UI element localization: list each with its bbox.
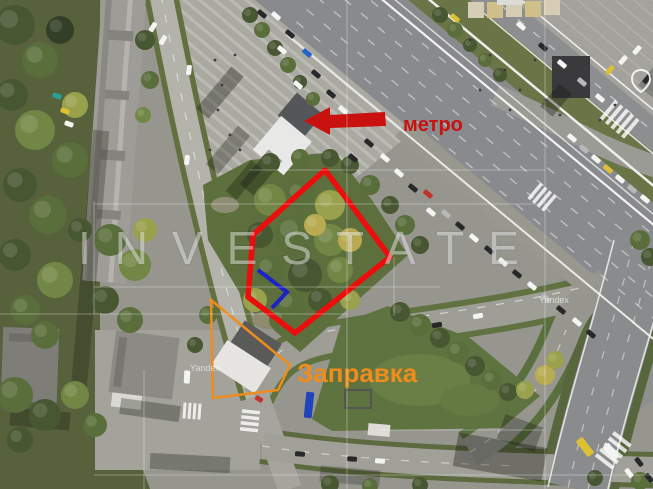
metro-label: метро [403,114,463,136]
satellite-map-screenshot: метро Заправка INVESTATE Yandex Yandex [0,0,653,489]
lawn-shed [368,423,391,437]
satellite-imagery: метро Заправка [0,0,653,489]
gas-station-label: Заправка [297,358,418,388]
